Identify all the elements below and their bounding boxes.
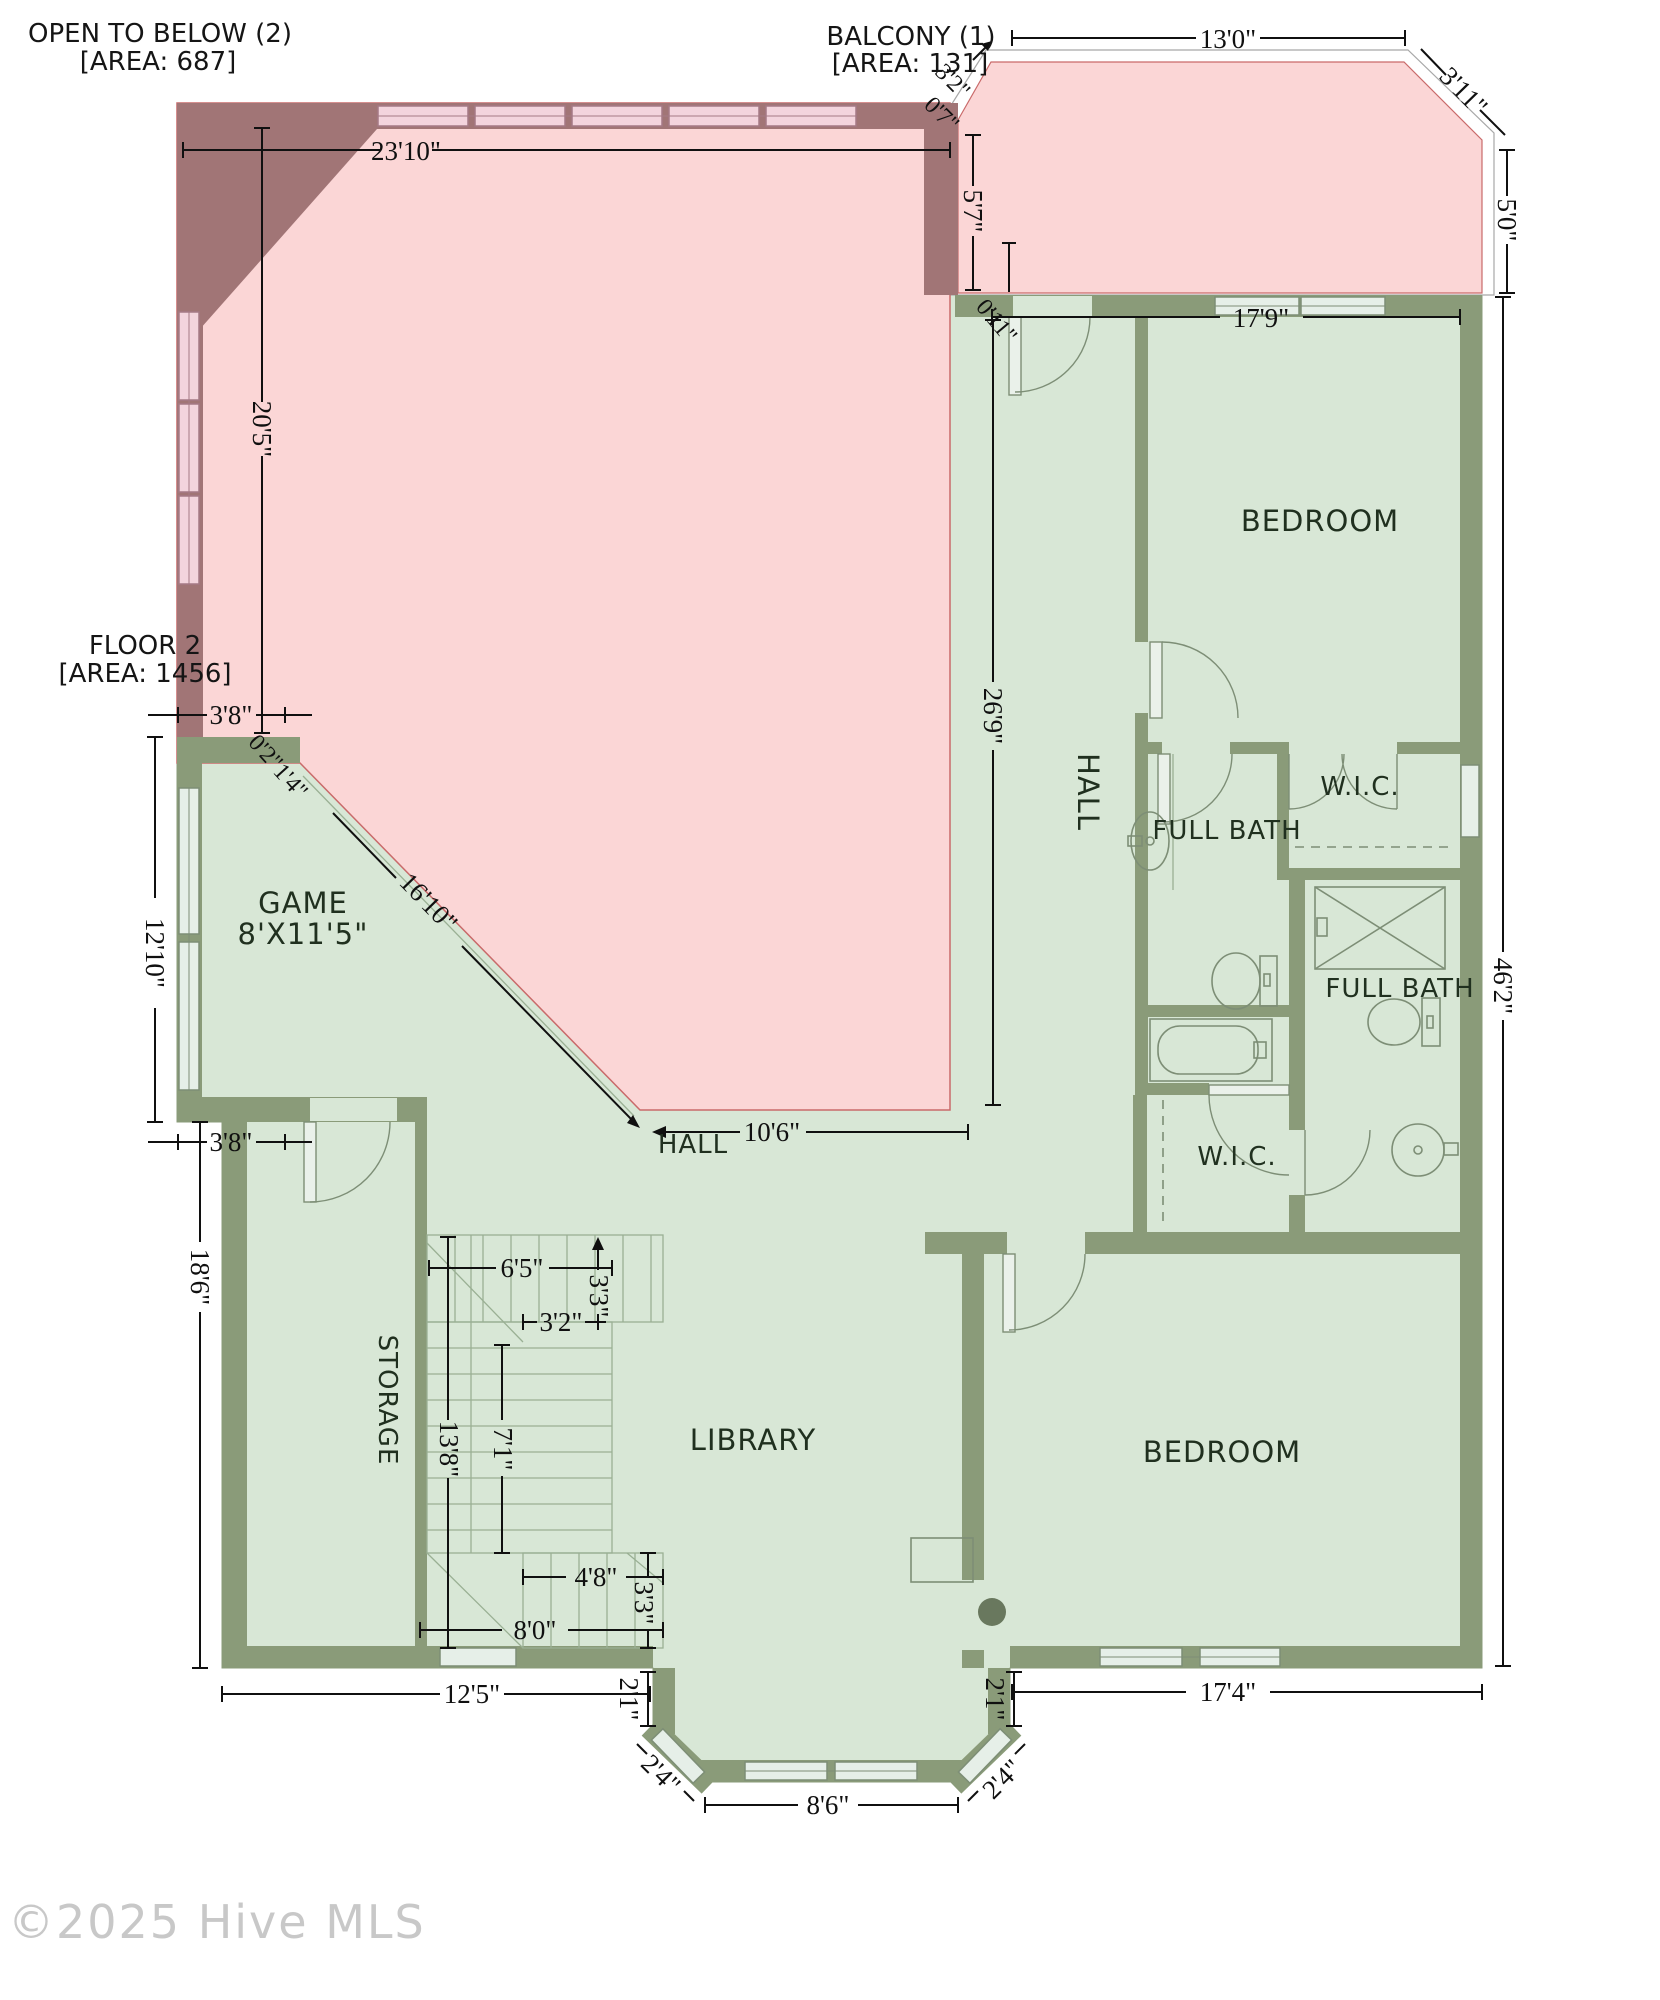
dim-stair-total-width: 8'0" — [514, 1615, 557, 1645]
balcony-area-label: [AREA: 131] — [832, 49, 989, 79]
dim-hall-lower-width: 10'6" — [744, 1117, 800, 1147]
room-label-bedroom-bottom: BEDROOM — [1143, 1435, 1301, 1469]
door-leaf-wic-mid — [1209, 1085, 1289, 1095]
opening-wic1-doors — [1289, 742, 1397, 754]
dim-balcony-right: 5'0" — [1492, 199, 1522, 242]
opening-bath2-door — [1289, 1130, 1305, 1195]
opening-bath1-door — [1162, 742, 1230, 754]
balcony-floor — [958, 62, 1482, 293]
dim-game-top-width: 3'8" — [210, 700, 253, 730]
wall-stairs-left — [415, 1097, 427, 1646]
dim-stair-top-width: 6'5" — [501, 1253, 544, 1283]
door-leaf-bath-top — [1158, 754, 1170, 824]
dim-stair-mid-width: 3'2" — [540, 1307, 583, 1337]
room-label-game-size: 8'X11'5" — [238, 917, 369, 951]
room-label-hall-lower: HALL — [658, 1130, 728, 1160]
room-label-game: GAME — [258, 886, 348, 920]
pink-left-windows — [179, 312, 199, 584]
room-label-wic-top: W.I.C. — [1320, 772, 1399, 802]
open-to-below-area-label: [AREA: 687] — [80, 47, 237, 77]
pink-top-windows — [378, 106, 856, 126]
balcony — [948, 50, 1494, 295]
opening-balcony-door — [1013, 296, 1092, 317]
door-leaf-bedroom-top — [1150, 642, 1162, 718]
wall-bedroom2-top — [925, 1232, 1460, 1254]
wall-wic2-left — [1133, 1095, 1147, 1232]
door-leaf-bedroom-bottom — [1003, 1254, 1015, 1332]
room-label-hall-upper: HALL — [1071, 753, 1105, 831]
dim-open-height: 20'5" — [247, 401, 277, 457]
opening-bedroom2-door — [1007, 1232, 1085, 1254]
room-label-bedroom-top: BEDROOM — [1241, 504, 1399, 538]
dim-game-left-height: 12'10" — [140, 918, 170, 988]
room-label-full-bath-bottom: FULL BATH — [1325, 974, 1474, 1004]
dim-stair-run-height: 7'1" — [488, 1428, 518, 1471]
dim-bedroom-bottom-width: 17'4" — [1200, 1677, 1256, 1707]
wall-hall-bedroom — [1135, 317, 1148, 642]
dim-bay-width: 8'6" — [807, 1790, 850, 1820]
dim-game-step: 3'8" — [210, 1127, 253, 1157]
room-label-full-bath-top: FULL BATH — [1152, 816, 1301, 846]
open-to-below-title: OPEN TO BELOW (2) — [28, 19, 292, 49]
wall-bottom-left — [222, 1646, 653, 1668]
dim-stair-bottom-height: 3'3" — [629, 1582, 659, 1625]
opening-storage-door — [310, 1098, 397, 1121]
room-label-storage: STORAGE — [372, 1335, 402, 1466]
watermark: ©2025 Hive MLS — [8, 1895, 426, 1949]
floorplan-svg: 23'10" 13'0" 3'11" 5'0" 5'7" 3'2" 0'7" 0… — [0, 0, 1660, 2000]
room-label-wic-mid: W.I.C. — [1197, 1142, 1276, 1172]
wall-storage-left — [222, 1122, 247, 1668]
dim-stair-top-height: 3'3" — [584, 1275, 614, 1318]
door-stop-dot — [978, 1598, 1006, 1626]
dim-bedroom-top-width: 17'9" — [1233, 303, 1289, 333]
wall-hall-bath — [1135, 713, 1148, 1095]
dim-balcony-width: 13'0" — [1200, 24, 1256, 54]
balcony-title: BALCONY (1) — [826, 22, 995, 52]
dim-bay-left-step: 2'1" — [614, 1678, 644, 1721]
opening-bedroom-door — [1135, 642, 1148, 713]
dim-stair-bottom-width: 4'8" — [575, 1562, 618, 1592]
dim-hall-height: 26'9" — [978, 688, 1008, 744]
door-leaf-storage — [304, 1122, 316, 1202]
floorplan-canvas: 23'10" 13'0" 3'11" 5'0" 5'7" 3'2" 0'7" 0… — [0, 0, 1660, 2000]
dim-storage-width: 12'5" — [444, 1679, 500, 1709]
dim-bay-right-step: 2'1" — [980, 1678, 1010, 1721]
floor2-area-label: [AREA: 1456] — [58, 659, 231, 689]
dim-balcony-left: 5'7" — [958, 190, 988, 233]
dim-open-width: 23'10" — [371, 136, 441, 166]
wall-wic-bottom — [1289, 868, 1460, 880]
room-label-library: LIBRARY — [690, 1423, 816, 1457]
dim-stair-left-height: 13'8" — [434, 1421, 464, 1477]
floor2-title: FLOOR 2 — [89, 631, 201, 661]
dim-storage-height: 18'6" — [185, 1249, 215, 1305]
dim-right-height: 46'2" — [1488, 958, 1518, 1014]
